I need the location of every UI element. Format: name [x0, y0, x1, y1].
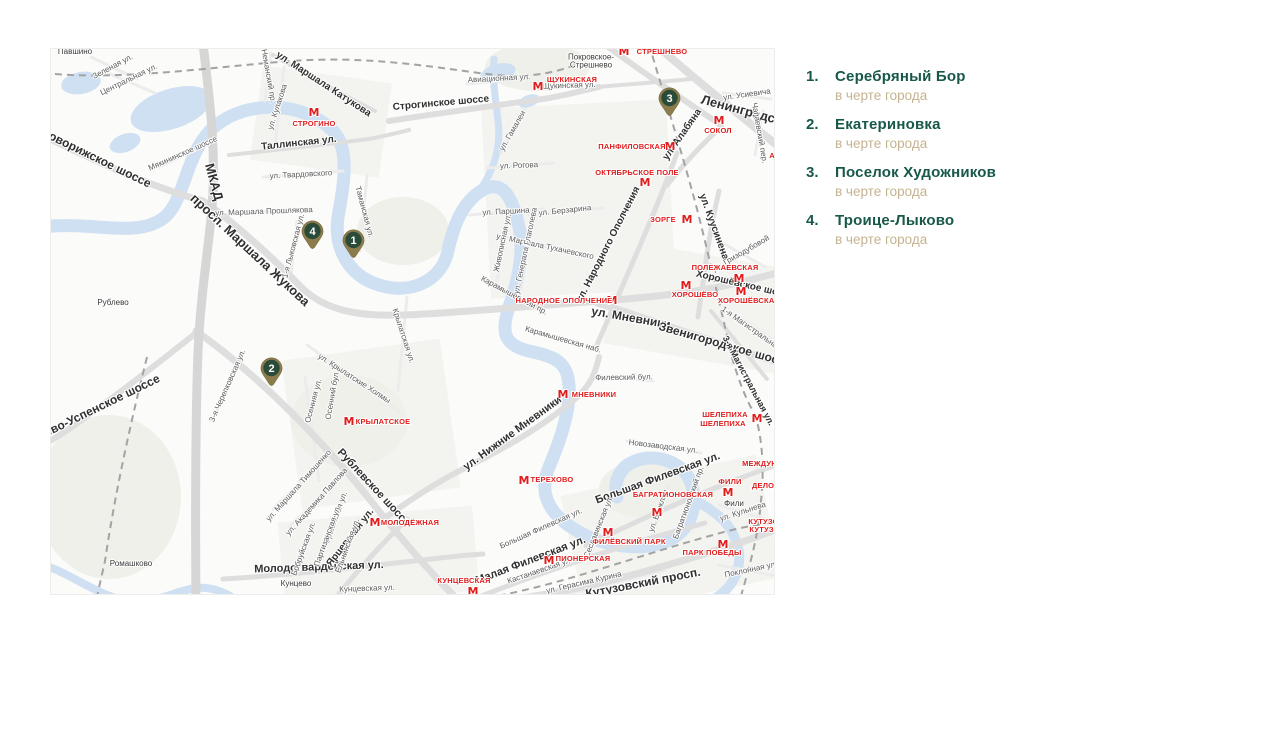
map-pin-2[interactable]: 2: [260, 357, 283, 388]
street-label: Поклонная ул.: [724, 560, 775, 579]
street-label: Большая Филевская ул.: [499, 507, 584, 551]
street-label: ул. Рогова: [500, 161, 538, 171]
legend-item-title: Екатериновка: [835, 116, 941, 133]
street-label: ул. Генерала Глаголева: [513, 207, 540, 295]
legend-item-subtitle: в черте города: [835, 184, 996, 199]
metro-icon: М: [665, 141, 676, 153]
street-label: Оршанская ул.: [323, 491, 350, 546]
place-label: Павшино: [58, 48, 92, 56]
street-label: Новозаводская ул.: [628, 439, 698, 456]
street-label: Кастанаевская ул.: [506, 556, 573, 586]
metro-station-label: КУТУЗОВСКАЯ: [749, 526, 775, 534]
metro-station-label: НАРОДНОЕ ОПОЛЧЕНИЕ: [516, 297, 613, 305]
street-label: ул. Народного Ополчения: [575, 185, 643, 305]
street-label: Осенний бул.: [325, 370, 342, 420]
legend-item-subtitle: в черте города: [835, 232, 954, 247]
svg-text:4: 4: [309, 226, 316, 238]
street-label: Чапаевский пер.: [750, 102, 769, 164]
metro-icon: М: [714, 115, 725, 127]
metro-station-label: ПАРК ПОБЕДЫ: [683, 549, 742, 557]
place-label: Фили: [724, 500, 744, 508]
metro-icon: М: [344, 416, 355, 428]
place-label: Ромашково: [110, 560, 152, 568]
street-label: Молодогвардейская ул.: [254, 560, 384, 576]
legend-item-title: Поселок Художников: [835, 164, 996, 181]
map-pin-4[interactable]: 4: [301, 220, 324, 251]
street-label: ул. Маршала Тимошенко: [265, 449, 334, 524]
street-label: ул. Нижние Мневники: [462, 394, 565, 473]
metro-icon: М: [544, 555, 555, 567]
street-label: 1-я Магистральная: [720, 305, 775, 353]
street-label: ул. Куусинена: [696, 193, 730, 262]
metro-station-label: ФИЛЁВСКИЙ ПАРК: [592, 538, 665, 546]
legend-item: 1. Серебряный Бор в черте города: [806, 68, 1226, 103]
metro-icon: М: [558, 389, 569, 401]
street-label: Сеславинская ул.: [583, 495, 615, 559]
metro-station-label: МЕЖДУНАРОДНАЯ: [742, 460, 775, 468]
street-label: Мякининское шоссе: [147, 135, 218, 173]
metro-station-label: МНЕВНИКИ: [572, 391, 616, 399]
legend-item-subtitle: в черте города: [835, 88, 966, 103]
metro-station-label: ХОРОШЁВСКАЯ: [718, 297, 775, 305]
pin-icon: 3: [658, 87, 681, 118]
svg-text:3: 3: [666, 93, 672, 105]
metro-icon: М: [607, 295, 618, 307]
metro-station-label: ХОРОШЁВО: [672, 291, 719, 299]
street-label: Центральная ул.: [99, 63, 159, 98]
legend-item: 4. Троице-Лыково в черте города: [806, 212, 1226, 247]
street-label: Карамышевская наб.: [524, 325, 602, 355]
street-label: ул. Маршала Катукова: [274, 50, 373, 119]
place-label: Рублево: [97, 299, 128, 307]
street-label: ул. Маршала Прошлякова: [215, 206, 313, 218]
metro-station-label: ДЕЛОВОЙ ЦЕНТР: [752, 482, 775, 490]
metro-icon: М: [619, 48, 630, 58]
pin-icon: 2: [260, 357, 283, 388]
street-label: Крылатская ул.: [390, 308, 416, 365]
pin-icon: 1: [342, 229, 365, 260]
map-overlays: Новорижское шоссеМКАДпросп. Маршала Жуко…: [51, 49, 774, 594]
street-label: ул. Барклая: [648, 489, 671, 533]
street-label: просп. Маршала Жукова: [188, 191, 312, 308]
street-label: ул. Твардовского: [269, 169, 332, 181]
metro-station-label: ЩУКИНСКАЯ: [547, 76, 597, 84]
street-label: ул. Берзарина: [538, 204, 591, 218]
pin-icon: 4: [301, 220, 324, 251]
legend-item-number: 2.: [806, 116, 835, 151]
metro-station-label: КУТУЗОВСКАЯ: [748, 518, 775, 526]
place-label: Покровское- Стрешнево: [568, 54, 614, 71]
metro-icon: М: [681, 280, 692, 292]
street-label: Живописная ул.: [493, 213, 514, 273]
svg-text:1: 1: [350, 235, 356, 247]
legend-item-title: Серебряный Бор: [835, 68, 966, 85]
street-label: ул. Усиевича: [723, 88, 771, 103]
metro-icon: М: [736, 286, 747, 298]
map-canvas[interactable]: Новорижское шоссеМКАДпросп. Маршала Жуко…: [50, 48, 775, 595]
metro-station-label: ШЕЛЕПИХА: [702, 411, 748, 419]
metro-station-label: СТРОГИНО: [292, 120, 335, 128]
metro-icon: М: [603, 527, 614, 539]
legend-item-number: 1.: [806, 68, 835, 103]
street-label: Неманский пр.: [259, 49, 277, 104]
street-label: 3-я Магистральная ул.: [720, 335, 775, 428]
street-label: ул. Мневники: [590, 305, 671, 331]
metro-icon: М: [723, 487, 734, 499]
metro-icon: М: [752, 413, 763, 425]
street-label: Хорошёвское шоссе: [695, 270, 775, 303]
street-label: Филевский бул.: [595, 373, 653, 382]
street-label: Зеленая ул.: [91, 53, 134, 81]
metro-station-label: ПИОНЕРСКАЯ: [556, 555, 611, 563]
map-pin-1[interactable]: 1: [342, 229, 365, 260]
street-label: Малая Филевская ул.: [474, 535, 587, 588]
street-label: Авиационная ул.: [468, 73, 531, 85]
street-label: ул. Гризодубовой: [711, 234, 771, 274]
street-label: ул. Гамалеи: [498, 109, 528, 152]
place-label: Кунцево: [281, 580, 312, 588]
street-label: ул. Паршина: [482, 207, 530, 218]
street-label: ул. Герасима Курина: [546, 570, 623, 595]
metro-icon: М: [519, 475, 530, 487]
street-label: Таллинская ул.: [261, 135, 337, 153]
metro-station-label: КУНЦЕВСКАЯ: [437, 577, 490, 585]
street-label: Большая Филевская ул.: [594, 451, 722, 507]
metro-icon: М: [309, 107, 320, 119]
street-label: Ленинградский: [700, 93, 775, 132]
metro-icon: М: [533, 81, 544, 93]
metro-station-label: КРЫЛАТСКОЕ: [356, 418, 411, 426]
street-label: Щукинская ул.: [542, 81, 596, 91]
street-label: Бобруйская ул.: [290, 521, 317, 577]
street-label: Рублевское шоссе: [334, 447, 411, 529]
street-label: ул. Кулакова: [267, 83, 290, 130]
street-label: Карамышевский пр.: [479, 275, 548, 317]
metro-icon: М: [718, 539, 729, 551]
street-label: Ельнинская ул.: [334, 518, 361, 574]
metro-station-label: ШЕЛЕПИХА: [700, 420, 746, 428]
street-label: 3-я Черепковская ул.: [208, 349, 248, 424]
metro-station-label: БАГРАТИОНОВСКАЯ: [633, 491, 713, 499]
metro-station-label: ПАНФИЛОВСКАЯ: [598, 143, 665, 151]
legend-item: 2. Екатериновка в черте города: [806, 116, 1226, 151]
street-label: Багратионовский пр.: [672, 466, 706, 541]
street-label: Звенигородское шоссе: [657, 320, 775, 370]
metro-station-label: ЗОРГЕ: [650, 216, 676, 224]
map-pin-3[interactable]: 3: [658, 87, 681, 118]
legend-item-number: 3.: [806, 164, 835, 199]
metro-station-label: МОЛОДЁЖНАЯ: [381, 519, 439, 527]
street-label: Кунцевская ул.: [339, 584, 395, 594]
street-label: МКАД: [203, 162, 226, 202]
svg-text:2: 2: [268, 363, 274, 375]
metro-icon: М: [640, 177, 651, 189]
street-label: Новорижское шоссе: [50, 126, 153, 190]
metro-icon: М: [682, 214, 693, 226]
street-label: Кутузовский просп.: [585, 566, 702, 595]
legend-item-number: 4.: [806, 212, 835, 247]
legend-item: 3. Поселок Художников в черте города: [806, 164, 1226, 199]
street-label: ул. Крылатские Холмы: [316, 353, 391, 406]
metro-icon: М: [652, 507, 663, 519]
metro-icon: М: [734, 273, 745, 285]
legend: 1. Серебряный Бор в черте города 2. Екат…: [806, 68, 1226, 260]
street-label: ул. Маршала Тухачевского: [495, 233, 594, 262]
metro-icon: М: [370, 517, 381, 529]
metro-icon: М: [468, 586, 479, 595]
metro-station-label: ТЕРЕХОВО: [531, 476, 574, 484]
street-label: Ярцевская ул.: [325, 507, 377, 569]
metro-station-label: СОКОЛ: [704, 127, 732, 135]
metro-station-label: ФИЛИ: [718, 478, 741, 486]
street-label: ул. Кульнева: [719, 501, 767, 524]
metro-station-label: СТРЕШНЕВО: [637, 48, 688, 56]
street-label: ул. Академика Павлова: [284, 467, 349, 538]
metro-station-label: ОКТЯБРЬСКОЕ ПОЛЕ: [595, 169, 678, 177]
metro-station-label: АЭРОПОРТ: [769, 152, 775, 160]
legend-item-title: Троице-Лыково: [835, 212, 954, 229]
street-label: Рублево-Успенское шоссе: [50, 372, 162, 452]
street-label: Строгинское шоссе: [392, 95, 489, 114]
metro-station-label: ПОЛЕЖАЕВСКАЯ: [692, 264, 759, 272]
legend-item-subtitle: в черте города: [835, 136, 941, 151]
street-label: Партизанская ул.: [313, 504, 343, 568]
street-label: Осенняя ул.: [304, 378, 324, 424]
